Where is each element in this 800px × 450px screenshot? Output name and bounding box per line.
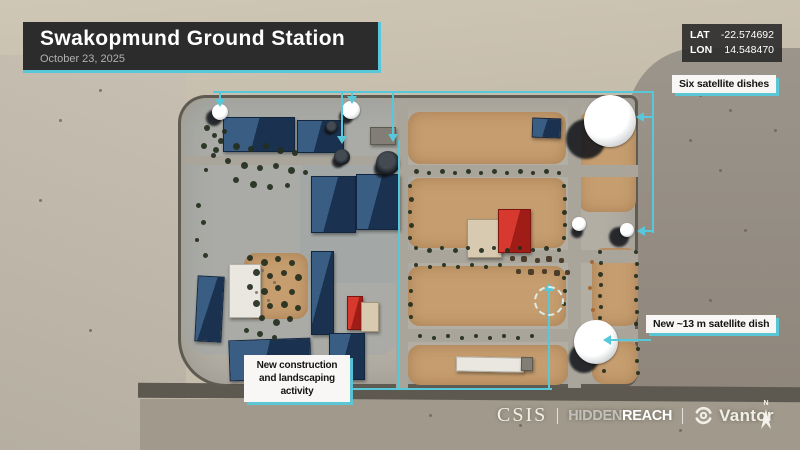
north-arrow: N [757,400,775,435]
tree-dot [634,274,638,278]
tree-dot [518,169,523,174]
tree-dot [250,181,257,188]
rock-dot [89,329,92,332]
tree-dot [599,261,603,265]
tree-dot [409,197,414,202]
building-gray-roof [521,357,533,371]
tree-dot [295,274,302,281]
tree-dot [488,336,492,340]
tree-dot [275,256,281,262]
tree-dot [253,269,260,276]
title-block: Swakopmund Ground Station October 23, 20… [23,22,381,73]
tree-dot [408,210,412,214]
tree-dot [233,177,239,183]
tree-dot [563,289,567,293]
tree-dot [544,169,549,174]
tree-dot [418,334,422,338]
tree-dot [289,289,295,295]
hidden-reach-logo-hidden: HIDDEN [568,408,622,424]
tree-dot [557,171,561,175]
tree-dot [257,165,263,171]
tree-dot [213,147,219,153]
road [186,156,398,165]
tree-dot [267,184,273,190]
tree-dot [408,236,412,240]
building-blue-roof [311,251,334,335]
tree-dot [563,197,567,201]
satellite-image-graphic: Six satellite dishes New ~13 m satellite… [0,0,800,450]
tree-dot [273,163,279,169]
lon-label: LON [690,43,712,58]
tree-dot [195,238,199,242]
equip-dot [559,258,564,263]
tree-dot [599,283,603,287]
satellite-dish [574,320,618,364]
longitude-row: LON 14.548470 [690,43,774,58]
tree-dot [562,236,566,240]
shrub-dot [590,260,594,264]
tree-dot [466,246,470,250]
tree-dot [203,253,208,258]
building-beige-roof [361,302,379,332]
arrowhead-down-icon [388,134,398,142]
lat-value: -22.574692 [721,28,774,43]
tree-dot [453,171,457,175]
equip-dot [516,269,521,274]
tree-dot [261,259,268,266]
dashed-circle-marker [534,286,564,316]
shrub-dot [588,286,592,290]
annotation-line [644,116,652,118]
tree-dot [634,322,638,326]
hidden-reach-logo-reach: REACH [622,408,672,424]
equip-dot [535,258,540,263]
arrowhead-left-icon [637,226,645,236]
tree-dot [414,246,418,250]
tree-dot [479,248,484,253]
rock-dot [99,89,102,92]
equip-dot [546,256,552,262]
tree-dot [442,263,446,267]
annotation-line [340,388,552,390]
tree-dot [516,336,520,340]
tree-dot [204,168,208,172]
tree-dot [267,303,273,309]
tree-dot [211,153,216,158]
satellite-dish [584,95,636,147]
tree-dot [460,336,464,340]
tree-dot [247,284,253,290]
tree-dot [288,167,295,174]
tree-dot [222,129,227,134]
tree-dot [267,273,273,279]
tree-dot [562,276,566,280]
tree-dot [427,248,432,253]
tree-dot [287,316,293,322]
lon-value: 14.548470 [724,43,774,58]
six-dishes-label: Six satellite dishes [672,75,776,93]
tree-dot [241,162,248,169]
page-title: Swakopmund Ground Station [40,27,378,51]
tree-dot [196,203,201,208]
equip-dot [542,269,547,274]
vantor-icon [693,405,714,426]
satellite-dish [334,149,350,165]
tree-dot [636,371,640,375]
shrub-dot [591,308,595,312]
building-blue-roof [532,118,562,139]
satellite-dish [326,121,338,133]
equip-dot [528,269,534,275]
tree-dot [635,262,639,266]
lat-label: LAT [690,28,710,43]
building-red-roof [498,209,531,253]
rock-dot [689,139,692,142]
satellite-dish [572,217,586,231]
tree-dot [635,310,639,314]
tree-dot [492,246,496,250]
tree-dot [261,288,268,295]
tree-dot [275,285,281,291]
tree-dot [409,289,413,293]
rock-dot [255,291,258,294]
tree-dot [281,270,287,276]
tree-dot [244,328,249,333]
tree-dot [446,334,450,338]
tree-dot [248,146,254,152]
building-white-roof [456,356,524,372]
tree-dot [263,143,269,149]
tree-dot [598,272,603,277]
tree-dot [502,334,506,338]
tree-dot [505,171,509,175]
tree-dot [225,158,231,164]
annotation-line [652,91,654,233]
latitude-row: LAT -22.574692 [690,28,774,43]
tree-dot [562,184,566,188]
tree-dot [409,315,413,319]
tree-dot [440,169,445,174]
arrowhead-down-icon [337,136,347,144]
tree-dot [414,263,418,267]
tree-dot [466,169,471,174]
tree-dot [470,263,474,267]
hidden-reach-logo: HIDDENREACH [568,408,672,424]
satellite-dish [376,151,400,175]
rock-dot [261,269,264,272]
equip-dot [565,270,570,275]
tree-dot [408,276,412,280]
tree-dot [453,248,458,253]
rock-dot [39,199,42,202]
tree-dot [212,133,217,138]
arrowhead-down-icon [215,99,225,107]
tree-dot [204,125,210,131]
tree-dot [272,335,277,340]
tree-dot [518,246,522,250]
annotation-line [392,92,394,135]
equip-dot [554,270,560,276]
tree-dot [634,250,638,254]
rock-dot [729,109,732,112]
tree-dot [273,319,280,326]
tree-dot [531,248,535,252]
rock-dot [719,169,722,172]
tree-dot [289,260,295,266]
satellite-dish [620,223,634,237]
annotation-line [645,230,652,232]
csis-logo: CSIS [497,404,547,427]
tree-dot [456,265,460,269]
arrowhead-left-icon [603,335,611,345]
rock-dot [273,281,276,284]
arrowhead-down-icon [347,96,357,104]
tree-dot [201,220,206,225]
tree-dot [233,143,240,150]
tree-dot [292,150,298,156]
tree-dot [253,300,260,307]
building-blue-roof [194,275,224,342]
tree-dot [303,170,308,175]
tree-dot [563,223,567,227]
tree-dot [530,334,534,338]
coordinates-box: LAT -22.574692 LON 14.548470 [682,24,782,62]
equip-dot [510,256,515,261]
rock-dot [699,94,702,97]
rock-dot [59,119,62,122]
tree-dot [505,248,510,253]
rock-dot [709,299,712,302]
tree-dot [635,359,639,363]
building-beige-roof [467,219,502,258]
tree-dot [634,298,638,302]
logo-strip: CSIS HIDDENREACH Vantor [497,404,774,427]
tree-dot [218,138,224,144]
tree-dot [408,302,413,307]
annotation-line [398,140,400,389]
tree-dot [562,210,567,215]
north-label: N [757,400,775,408]
tree-dot [259,315,265,321]
annotation-line [341,92,343,137]
tree-dot [602,369,606,373]
tree-dot [409,223,414,228]
tree-dot [598,294,602,298]
construction-label: New construction and landscaping activit… [244,355,350,402]
tree-dot [432,336,436,340]
tree-dot [257,331,263,337]
tree-dot [285,183,290,188]
tree-dot [281,301,288,308]
arrowhead-left-icon [636,112,644,122]
annotation-line [219,92,221,99]
tree-dot [479,171,483,175]
tree-dot [427,171,431,175]
tree-dot [414,169,419,174]
tree-dot [635,286,639,290]
tree-dot [277,147,284,154]
tree-dot [531,171,535,175]
rock-dot [679,429,682,432]
tree-dot [492,169,497,174]
tree-dot [484,265,488,269]
rock-dot [774,129,777,132]
building-blue-roof [311,176,356,233]
tree-dot [598,250,602,254]
tree-dot [295,305,301,311]
tree-dot [557,248,561,252]
rock-dot [267,299,270,302]
tree-dot [498,263,502,267]
rock-dot [429,414,432,417]
annotation-line [213,91,654,93]
image-date: October 23, 2025 [40,53,378,65]
logo-divider [682,408,683,424]
new-dish-label: New ~13 m satellite dish [646,315,776,333]
tree-dot [247,255,253,261]
annotation-line [611,339,651,341]
tree-dot [474,334,478,338]
tree-dot [544,246,549,251]
tree-dot [428,265,432,269]
tree-dot [599,305,603,309]
equip-dot [521,256,527,262]
tree-dot [440,246,444,250]
building-blue-roof [356,174,400,230]
logo-divider [557,408,558,424]
tree-dot [636,347,640,351]
rock-dot [744,229,747,232]
tree-dot [408,184,412,188]
north-arrow-icon [759,408,773,430]
tree-dot [201,143,207,149]
